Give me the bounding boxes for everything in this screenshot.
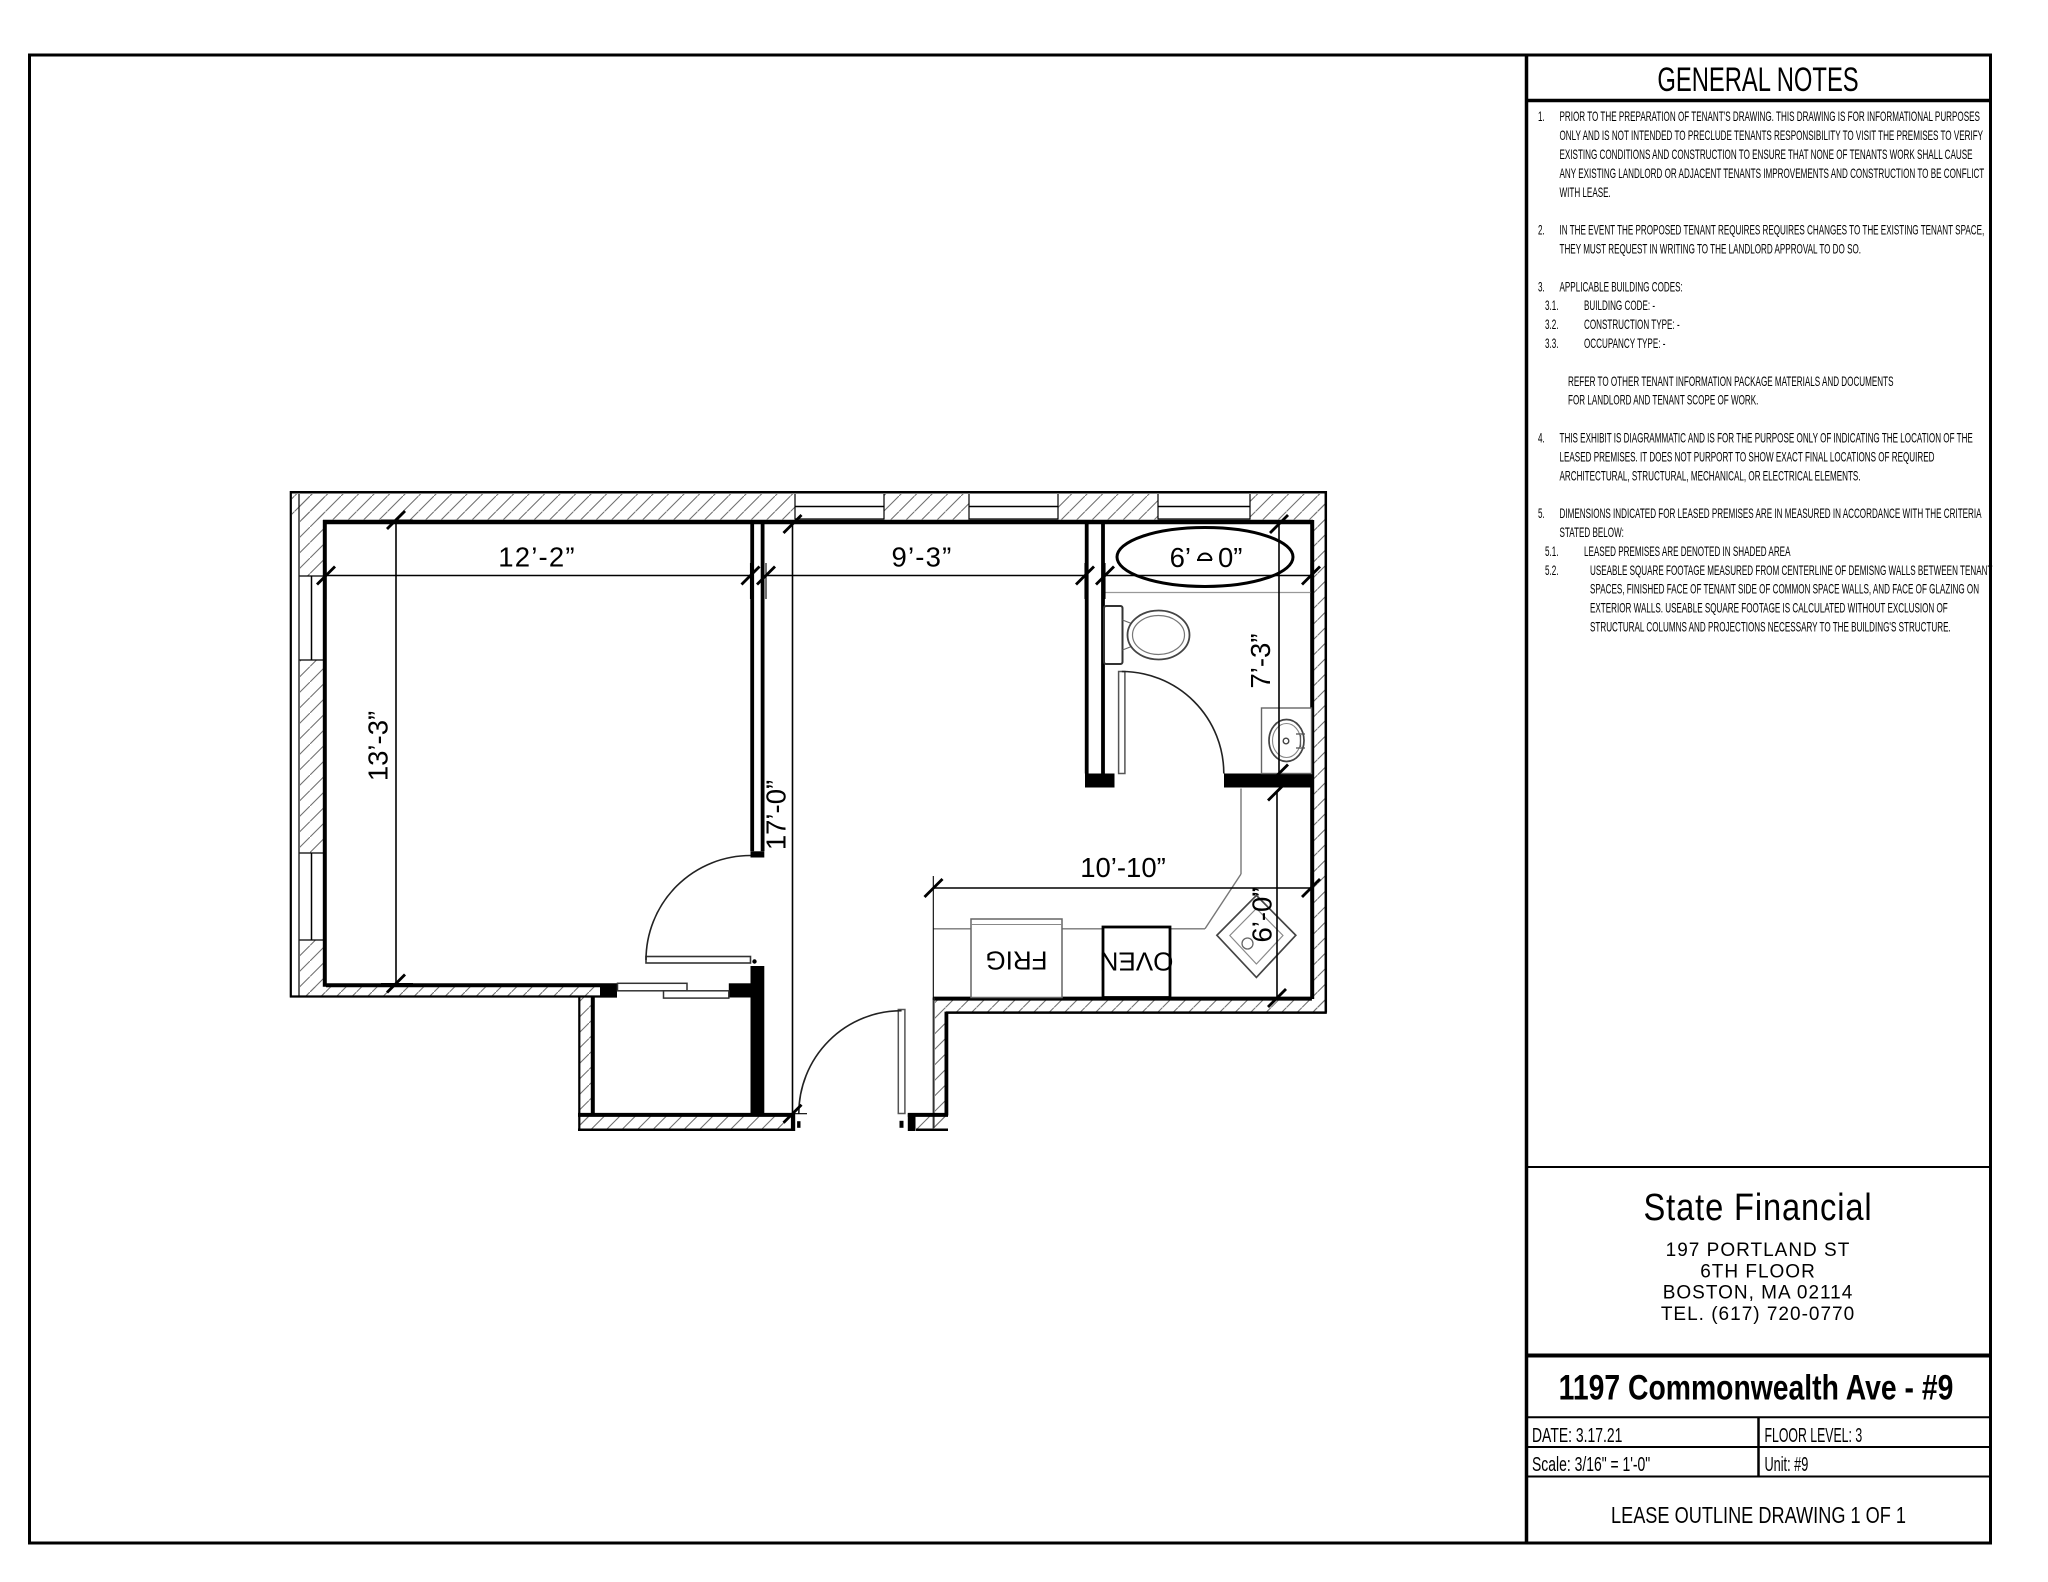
svg-text:SPACES, FINISHED FACE OF TENAN: SPACES, FINISHED FACE OF TENANT SIDE OF … — [1590, 583, 1979, 598]
svg-text:ARCHITECTURAL, STRUCTURAL, MEC: ARCHITECTURAL, STRUCTURAL, MECHANICAL, O… — [1560, 469, 1861, 484]
svg-text:LEASED PREMISES. IT DOES NOT: LEASED PREMISES. IT DOES NOT PURPORT TO … — [1560, 450, 1935, 465]
svg-text:197 PORTLAND ST: 197 PORTLAND ST — [1666, 1240, 1851, 1261]
svg-text:ANY EXISTING LANDLORD OR ADJAC: ANY EXISTING LANDLORD OR ADJACENT TENANT… — [1560, 167, 1985, 182]
svg-text:7’-3”: 7’-3” — [1245, 633, 1276, 688]
svg-text:THEY MUST REQUEST IN WRITING: THEY MUST REQUEST IN WRITING TO THE LAND… — [1560, 243, 1862, 258]
svg-text:12’-2”: 12’-2” — [498, 542, 576, 573]
svg-text:1197 Commonwealth Ave - #9: 1197 Commonwealth Ave - #9 — [1559, 1368, 1954, 1408]
svg-text:IN THE EVENT THE PROPOSED TENA: IN THE EVENT THE PROPOSED TENANT REQUIRE… — [1560, 224, 1985, 239]
svg-text:State Financial: State Financial — [1644, 1186, 1873, 1229]
svg-text:BUILDING CODE: -: BUILDING CODE: - — [1584, 299, 1655, 314]
svg-text:4.: 4. — [1538, 432, 1545, 447]
svg-text:EXTERIOR WALLS. USEABLE SQUAR: EXTERIOR WALLS. USEABLE SQUARE FOOTAGE I… — [1590, 602, 1948, 617]
svg-text:FOR LANDLORD AND TENANT SCOPE: FOR LANDLORD AND TENANT SCOPE OF WORK. — [1568, 394, 1758, 409]
svg-text:ONLY AND IS NOT INTENDED TO PR: ONLY AND IS NOT INTENDED TO PRECLUDE TEN… — [1560, 129, 1984, 144]
svg-text:LEASED PREMISES ARE DENOTED IN: LEASED PREMISES ARE DENOTED IN SHADED AR… — [1584, 545, 1791, 560]
svg-text:6TH FLOOR: 6TH FLOOR — [1700, 1261, 1816, 1282]
svg-text:10’-10”: 10’-10” — [1080, 852, 1166, 883]
svg-text:STATED BELOW:: STATED BELOW: — [1560, 526, 1624, 541]
svg-text:WITH LEASE.: WITH LEASE. — [1560, 186, 1611, 201]
svg-text:2.: 2. — [1538, 224, 1545, 239]
svg-text:DIMENSIONS INDICATED FOR LEASE: DIMENSIONS INDICATED FOR LEASED PREMISES… — [1560, 507, 1982, 522]
svg-text:PRIOR TO THE PREPARATION OF TE: PRIOR TO THE PREPARATION OF TENANT'S DRA… — [1560, 110, 1980, 125]
svg-text:BOSTON, MA 02114: BOSTON, MA 02114 — [1663, 1283, 1854, 1304]
svg-text:3.: 3. — [1538, 280, 1545, 295]
svg-text:5.1.: 5.1. — [1545, 545, 1559, 560]
svg-text:DATE: 3.17.21: DATE: 3.17.21 — [1532, 1423, 1622, 1446]
svg-text:5.2.: 5.2. — [1545, 564, 1559, 579]
svg-text:FRIG: FRIG — [985, 946, 1047, 976]
svg-text:3.1.: 3.1. — [1545, 299, 1559, 314]
svg-text:Scale: 3/16" = 1'-0": Scale: 3/16" = 1'-0" — [1532, 1452, 1650, 1475]
svg-text:CONSTRUCTION TYPE: -: CONSTRUCTION TYPE: - — [1584, 318, 1680, 333]
svg-text:OVEN: OVEN — [1100, 947, 1174, 977]
svg-text:APPLICABLE BUILDING CODES:: APPLICABLE BUILDING CODES: — [1560, 280, 1683, 295]
svg-text:0”: 0” — [1218, 542, 1242, 573]
svg-text:5.: 5. — [1538, 507, 1545, 522]
svg-text:17’-0”: 17’-0” — [761, 780, 792, 850]
svg-text:STRUCTURAL COLUMNS AND PROJECT: STRUCTURAL COLUMNS AND PROJECTIONS NECES… — [1590, 621, 1951, 636]
svg-text:3.3.: 3.3. — [1545, 337, 1559, 352]
svg-text:GENERAL NOTES: GENERAL NOTES — [1657, 61, 1858, 99]
svg-text:REFER TO OTHER TENANT INFORMAT: REFER TO OTHER TENANT INFORMATION PACKAG… — [1568, 375, 1893, 390]
svg-text:6’-0”: 6’-0” — [1247, 887, 1278, 942]
svg-text:3.2.: 3.2. — [1545, 318, 1559, 333]
svg-text:9’-3”: 9’-3” — [891, 542, 952, 573]
svg-text:OCCUPANCY TYPE: -: OCCUPANCY TYPE: - — [1584, 337, 1666, 352]
svg-text:13’-3”: 13’-3” — [363, 711, 394, 781]
svg-text:Unit: #9: Unit: #9 — [1765, 1453, 1809, 1476]
svg-text:EXISTING CONDITIONS AND CONSTR: EXISTING CONDITIONS AND CONSTRUCTION TO … — [1560, 148, 1973, 163]
svg-text:1.: 1. — [1538, 110, 1545, 125]
svg-text:THIS EXHIBIT IS DIAGRAMMATIC A: THIS EXHIBIT IS DIAGRAMMATIC AND IS FOR … — [1560, 432, 1973, 447]
svg-text:USEABLE SQUARE FOOTAGE MEASURE: USEABLE SQUARE FOOTAGE MEASURED FROM CEN… — [1590, 564, 1993, 579]
svg-text:FLOOR LEVEL: 3: FLOOR LEVEL: 3 — [1765, 1424, 1863, 1447]
svg-text:LEASE OUTLINE DRAWING 1 OF 1: LEASE OUTLINE DRAWING 1 OF 1 — [1611, 1503, 1906, 1529]
svg-text:TEL. (617) 720-0770: TEL. (617) 720-0770 — [1661, 1304, 1855, 1325]
svg-text:6’: 6’ — [1170, 542, 1191, 573]
